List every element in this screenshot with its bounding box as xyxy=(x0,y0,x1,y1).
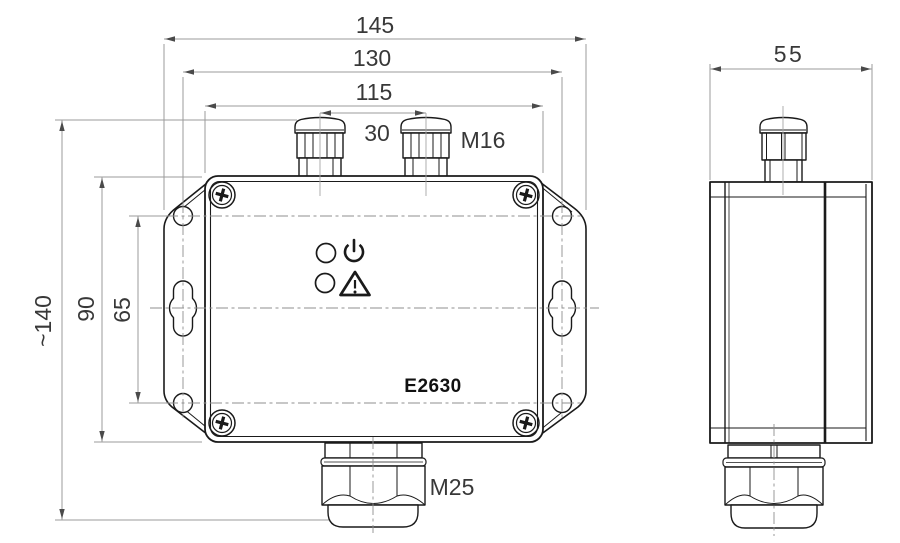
dim-label-overall-width: 145 xyxy=(356,12,394,38)
arrowhead xyxy=(99,178,104,188)
gland-base xyxy=(765,160,802,182)
cable-gland-m25-front xyxy=(321,443,426,527)
cable-gland-m16-side xyxy=(760,118,807,183)
arrowhead xyxy=(165,36,175,41)
screw-top-right xyxy=(513,182,539,208)
warning-exclamation-dot xyxy=(354,291,357,294)
dim-label-hole-spacing-h: 130 xyxy=(353,45,391,71)
technical-drawing-canvas: E2630 xyxy=(0,0,900,543)
dim-label-hole-spacing-v: 65 xyxy=(109,297,135,323)
arrowhead xyxy=(575,36,585,41)
arrowhead xyxy=(321,110,331,115)
screw-top-left xyxy=(209,182,235,208)
arrowhead xyxy=(551,69,561,74)
arrowhead xyxy=(415,110,425,115)
gland-nut xyxy=(762,133,806,160)
arrowhead xyxy=(135,217,140,227)
arrowhead xyxy=(532,103,542,108)
arrowhead xyxy=(861,66,871,71)
dim-label-gland-spacing: 30 xyxy=(364,120,390,146)
arrowhead xyxy=(59,509,64,519)
arrowhead xyxy=(711,66,721,71)
gland-dome xyxy=(760,118,807,134)
arrowhead xyxy=(59,121,64,131)
gland-neck xyxy=(325,443,422,458)
arrowhead xyxy=(135,392,140,402)
dim-label-body-height: 90 xyxy=(73,296,99,322)
dim-label-overall-height: ~140 xyxy=(30,295,56,347)
dim-label-top-gland-thread: M16 xyxy=(461,127,506,153)
arrowhead xyxy=(206,103,216,108)
side-body xyxy=(710,182,872,443)
enclosure-dimension-drawing: E2630 xyxy=(0,0,900,543)
gland-hex-nut xyxy=(322,466,425,505)
front-view: E2630 xyxy=(164,118,586,528)
product-label: E2630 xyxy=(404,376,461,397)
side-view xyxy=(710,118,872,529)
arrowhead xyxy=(184,69,194,74)
arrowhead xyxy=(99,431,104,441)
screw-bottom-right xyxy=(513,410,539,436)
dim-label-body-width: 115 xyxy=(356,79,393,105)
dim-label-bottom-gland-thread: M25 xyxy=(430,474,475,500)
dim-label-depth: 55 xyxy=(774,41,805,67)
screw-bottom-left xyxy=(209,410,235,436)
